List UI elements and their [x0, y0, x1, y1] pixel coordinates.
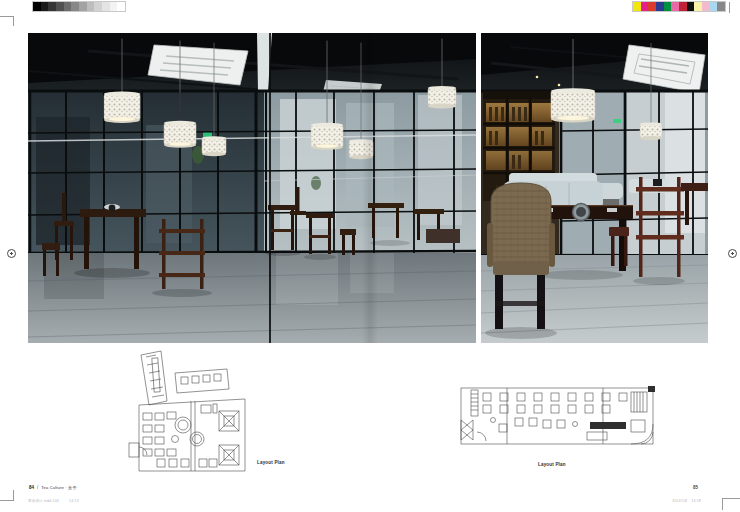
registration-mark-left [7, 249, 16, 258]
interior-photo-left-art [28, 33, 476, 343]
calibration-cell [79, 2, 87, 11]
interior-photo-right-art [481, 33, 708, 343]
footer-separator: / [37, 485, 38, 490]
color-calibration-bar [633, 2, 725, 11]
calibration-cell [64, 2, 72, 11]
page-number-left: 84 [29, 485, 34, 490]
calibration-cell [48, 2, 56, 11]
calibration-cell [71, 2, 79, 11]
file-info-right: 2014/1/814:18 [672, 500, 701, 504]
calibration-cell [87, 2, 95, 11]
calibration-cell [94, 2, 102, 11]
interior-photo-right [481, 33, 708, 343]
concrete-floor [28, 253, 476, 343]
calibration-cell [648, 2, 656, 11]
file-date-right: 2014/1/8 [672, 499, 687, 503]
plan-caption-left: Layout Plan [257, 461, 285, 466]
calibration-cell [656, 2, 664, 11]
exit-sign [613, 119, 621, 123]
plan-caption-right: Layout Plan [538, 463, 566, 468]
file-info-left: 茶舍设计.indd 14414:13 [28, 500, 79, 504]
calibration-cell [687, 2, 695, 11]
chapter-title: Tea Culture · 茶舍 [41, 485, 76, 490]
floor-plan-left-drawing [127, 347, 253, 479]
page-number-right: 85 [693, 486, 698, 491]
calibration-cell [710, 2, 718, 11]
interior-photo-left [28, 33, 476, 343]
crop-mark-bottom-left-v [13, 490, 14, 500]
calibration-cell [664, 2, 672, 11]
calibration-cell [641, 2, 649, 11]
registration-mark-right [728, 249, 737, 258]
file-name-left: 茶舍设计.indd 144 [28, 499, 59, 503]
calibration-cell [56, 2, 64, 11]
calibration-cell [110, 2, 118, 11]
crop-mark-bottom-right [722, 498, 740, 499]
book-spread-scan: { "printer_marks": { "grayscale_bar": ["… [0, 0, 740, 512]
calibration-cell [102, 2, 110, 11]
floor-plan-right [455, 380, 663, 460]
crop-mark-bottom-right-v [722, 498, 723, 510]
exit-sign [203, 132, 212, 137]
crop-mark-top-right [729, 2, 730, 13]
calibration-cell [117, 2, 125, 11]
calibration-cell [679, 2, 687, 11]
glass-partitions [28, 91, 476, 253]
crop-mark-top-left-v [13, 16, 14, 26]
calibration-cell [33, 2, 41, 11]
grayscale-calibration-bar [33, 2, 125, 11]
crop-mark-bottom-left [0, 500, 14, 501]
calibration-cell [671, 2, 679, 11]
crop-mark-top-left [0, 16, 14, 17]
calibration-cell [702, 2, 710, 11]
calibration-cell [694, 2, 702, 11]
footer-left: 84/Tea Culture · 茶舍 [29, 486, 77, 491]
floor-plan-right-drawing [455, 380, 663, 460]
calibration-cell [41, 2, 49, 11]
calibration-cell [717, 2, 725, 11]
floor-plan-left [127, 347, 253, 479]
file-time-left: 14:13 [69, 499, 79, 503]
file-time-right: 14:18 [691, 499, 701, 503]
calibration-cell [633, 2, 641, 11]
